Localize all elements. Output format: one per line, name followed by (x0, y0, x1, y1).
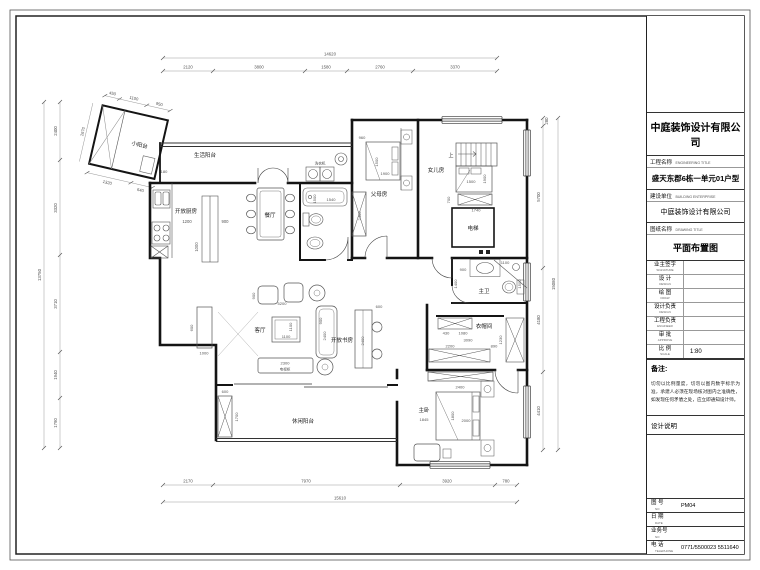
svg-text:600: 600 (189, 324, 194, 331)
nightstand-2 (481, 440, 494, 456)
dimension-text-right: 280 5700 4180 4410 15080 (536, 117, 556, 416)
kitchen-island (202, 196, 218, 262)
master-sink (477, 263, 494, 274)
sheet-border (10, 10, 750, 560)
svg-text:15080: 15080 (551, 277, 556, 290)
signature-table: 业主签字SIGNATURE 设 计DESIGN 绘 图DRAW 设计负责DESI… (647, 261, 744, 360)
elevator-label: 电梯 (467, 224, 479, 232)
window-right-1 (524, 130, 531, 176)
design-note-section: 设计说明 (647, 415, 744, 435)
svg-text:1900: 1900 (482, 174, 487, 184)
svg-text:960: 960 (359, 135, 366, 140)
phone-row: 电 话TELEPHONE 0771/5500023 5511640 (647, 540, 744, 554)
svg-text:1790: 1790 (53, 418, 58, 428)
svg-text:430: 430 (443, 331, 450, 336)
svg-text:2200: 2200 (446, 344, 456, 349)
svg-text:1100: 1100 (282, 334, 291, 339)
table-row-scale: 比 例SCALE 1:80 (647, 345, 744, 359)
room-label-parents: 父母房 (371, 190, 388, 198)
svg-text:1500: 1500 (312, 194, 317, 204)
room-label-service-balcony: 生活阳台 (194, 151, 217, 159)
svg-text:2760: 2760 (375, 65, 385, 70)
svg-text:3320: 3320 (53, 203, 58, 213)
service-balcony: 生活阳台 洗衣机 (194, 151, 347, 181)
pantry-cabinet (151, 246, 168, 258)
cloak-wardrobe-long (429, 349, 490, 362)
svg-text:2400: 2400 (322, 331, 327, 341)
svg-text:1100: 1100 (501, 260, 510, 265)
study-chair-2 (372, 349, 382, 359)
daughter-wardrobe (458, 194, 492, 205)
client-name: 中庭装饰设计有限公司 (647, 202, 744, 223)
leisure-balcony: 休闲阳台 600 1700 (218, 389, 314, 437)
tv-cabinet-label: 电视柜 (280, 367, 291, 372)
company-logo-area (647, 16, 744, 113)
svg-text:3090: 3090 (464, 338, 474, 343)
svg-text:1740: 1740 (472, 208, 482, 213)
svg-text:3920: 3920 (442, 479, 452, 484)
svg-text:1000: 1000 (200, 351, 210, 356)
svg-text:450: 450 (109, 90, 118, 97)
svg-text:2400: 2400 (357, 211, 362, 221)
svg-text:280: 280 (544, 117, 549, 125)
svg-text:1540: 1540 (327, 197, 337, 202)
room-label-living: 客厅 (254, 326, 266, 334)
project-label: 工程名称 ENGINEERING TITLE (647, 156, 744, 168)
open-study: 开放书房 2400 600 (331, 304, 383, 368)
master-bathroom: 主卫 900 1400 1100 1500 (453, 260, 527, 296)
svg-text:1845: 1845 (420, 417, 430, 422)
svg-text:2120: 2120 (183, 65, 193, 70)
toilet (303, 213, 323, 226)
small-balcony: 小阳台 450 1100 950 2670 1320 640 1180 (70, 86, 174, 196)
svg-text:950: 950 (155, 101, 164, 108)
svg-text:1100: 1100 (129, 95, 140, 102)
dimension-text-left: 2400 3320 3710 1940 1790 13750 (37, 126, 58, 428)
table-row-engineer: 工程负责ENGINEER (647, 317, 744, 331)
dining-room: 餐厅 (247, 188, 295, 240)
svg-text:1230: 1230 (498, 335, 503, 345)
svg-text:1580: 1580 (321, 65, 331, 70)
armchair-1 (258, 286, 278, 304)
tv-stool (414, 444, 440, 461)
svg-text:900: 900 (251, 292, 256, 299)
svg-text:1500: 1500 (374, 157, 379, 167)
room-label-leisure: 休闲阳台 (292, 417, 315, 425)
room-label-master: 主卧 (418, 406, 430, 414)
dimension-chain-bottom (161, 483, 519, 504)
room-label-master-bath: 主卫 (478, 287, 490, 295)
daughter-room: 上 电梯 女儿房 1500 1900 1740 700 (428, 143, 497, 254)
svg-text:2400: 2400 (53, 126, 58, 136)
svg-text:700: 700 (446, 196, 451, 203)
common-bathroom: 1500 1540 (303, 188, 347, 249)
drawing-name: 平面布置图 (647, 235, 744, 261)
svg-text:1200: 1200 (182, 219, 192, 224)
drawing-sheet: 14620 2120 3800 1580 2760 3370 2170 7970… (0, 0, 760, 570)
room-label-daughter: 女儿房 (428, 166, 445, 174)
svg-text:3710: 3710 (53, 299, 58, 309)
svg-text:890: 890 (491, 344, 498, 349)
stairs-up-label: 上 (448, 152, 453, 159)
bathroom-sink (307, 237, 323, 249)
room-label-dining: 餐厅 (264, 211, 276, 219)
svg-text:900: 900 (318, 317, 323, 324)
shower-head (513, 264, 520, 271)
date-row: 日 期DATE (647, 512, 744, 526)
svg-text:13750: 13750 (37, 268, 42, 281)
title-block: 中庭装饰设计有限公司 工程名称 ENGINEERING TITLE 盛天东郡6栋… (646, 16, 744, 554)
stove (152, 222, 170, 244)
sheet-number-row: 图 号NO PM04 (647, 498, 744, 512)
notes-section: 备注: 切勿以比例量度，切勿以图内数字标示为准，承建人必须在现场核对图内之准确性… (647, 360, 744, 405)
table-row-owner: 业主签字SIGNATURE (647, 261, 744, 275)
window-right-2 (524, 263, 531, 301)
living-room: 客厅 5200 1100 1100 900 2400 900 2300 电视柜 … (189, 283, 337, 375)
svg-text:1400: 1400 (453, 279, 458, 289)
sink (153, 190, 170, 208)
nightstand-1 (481, 381, 494, 397)
job-number-row: 业务号NO (647, 526, 744, 540)
window-top (442, 117, 502, 124)
parents-room: 父母房 960 1500 1900 2400 (352, 128, 412, 236)
svg-text:3370: 3370 (450, 65, 460, 70)
svg-text:14620: 14620 (324, 52, 337, 57)
window-right-3 (524, 386, 531, 438)
leisure-cabinet (218, 396, 232, 437)
svg-text:1940: 1940 (53, 370, 58, 380)
svg-text:900: 900 (222, 219, 230, 224)
dimension-chain-left (42, 100, 62, 450)
shower-screen (494, 260, 527, 288)
table-row-design-lead: 设计负责DESIGN (647, 303, 744, 317)
project-name: 盛天东郡6栋一单元01户型 (647, 168, 744, 190)
drawing-label: 图纸名称 DRAWING TITLE (647, 223, 744, 235)
svg-text:2400: 2400 (456, 385, 466, 390)
phone-number: 0771/5500023 5511640 (681, 541, 744, 554)
master-bedroom: 主卧 1845 2400 1800 2000 (414, 372, 494, 461)
svg-text:15610: 15610 (334, 496, 347, 501)
company-name: 中庭装饰设计有限公司 (647, 113, 744, 156)
svg-text:4180: 4180 (536, 315, 541, 325)
room-label-cloakroom: 衣帽间 (476, 322, 493, 330)
svg-text:1700: 1700 (234, 412, 239, 422)
svg-text:7970: 7970 (301, 479, 311, 484)
svg-text:4410: 4410 (536, 406, 541, 416)
svg-text:900: 900 (460, 267, 467, 272)
dimension-text-bottom: 2170 7970 3920 780 15610 (183, 479, 510, 501)
side-table-2 (317, 359, 333, 375)
svg-text:5200: 5200 (278, 301, 288, 306)
room-label-small-balcony: 小阳台 (131, 139, 149, 151)
console-cabinet (197, 307, 212, 348)
master-wardrobe (428, 372, 493, 381)
table-row-design: 设 计DESIGN (647, 275, 744, 289)
washer-label: 洗衣机 (315, 161, 326, 166)
walls (150, 120, 527, 465)
open-kitchen: 开放厨房 1200 900 1000 (151, 183, 229, 262)
svg-text:3800: 3800 (254, 65, 264, 70)
dimension-text-top: 14620 2120 3800 1580 2760 3370 (183, 52, 460, 70)
table-row-draw: 绘 图DRAW (647, 289, 744, 303)
sheet-number: PM04 (681, 499, 744, 512)
svg-text:1100: 1100 (288, 322, 293, 331)
svg-text:640: 640 (137, 187, 146, 194)
client-label: 建设单位 BUILDING ENTERPRISE (647, 190, 744, 202)
master-bed (436, 392, 480, 440)
svg-text:600: 600 (222, 389, 229, 394)
cloak-wardrobe-right (506, 318, 524, 362)
svg-text:2400: 2400 (360, 336, 365, 346)
svg-text:600: 600 (376, 304, 383, 309)
svg-text:2000: 2000 (462, 418, 472, 423)
svg-text:1800: 1800 (450, 411, 455, 421)
side-table-1 (309, 285, 325, 301)
study-chair-1 (372, 322, 382, 332)
bathtub (303, 188, 347, 206)
armchair-2 (284, 283, 303, 302)
svg-text:1320: 1320 (102, 179, 113, 186)
water-heater (335, 153, 347, 165)
window-master-bottom (430, 462, 490, 469)
svg-text:780: 780 (502, 479, 510, 484)
notes-text: 切勿以比例量度，切勿以图内数字标示为准，承建人必须在现场核对图内之准确性，如发现… (651, 380, 740, 403)
room-label-study: 开放书房 (331, 336, 354, 344)
table-row-approve: 审 批APPROVE (647, 331, 744, 345)
room-label-open-kitchen: 开放厨房 (175, 207, 198, 215)
svg-text:2300: 2300 (281, 361, 291, 366)
svg-text:1000: 1000 (194, 242, 199, 252)
cloak-wardrobe-top (438, 318, 472, 329)
svg-text:1080: 1080 (459, 331, 469, 336)
cloakroom: 衣帽间 430 1080 3090 2200 890 1230 (429, 318, 524, 362)
svg-text:2170: 2170 (183, 479, 193, 484)
notes-label: 备注: (651, 364, 740, 374)
washing-machines (306, 167, 334, 181)
svg-text:1900: 1900 (381, 171, 391, 176)
svg-text:5700: 5700 (536, 192, 541, 202)
svg-text:1500: 1500 (517, 279, 522, 289)
stairs (456, 143, 497, 166)
svg-text:1500: 1500 (467, 179, 477, 184)
doors (258, 168, 518, 393)
